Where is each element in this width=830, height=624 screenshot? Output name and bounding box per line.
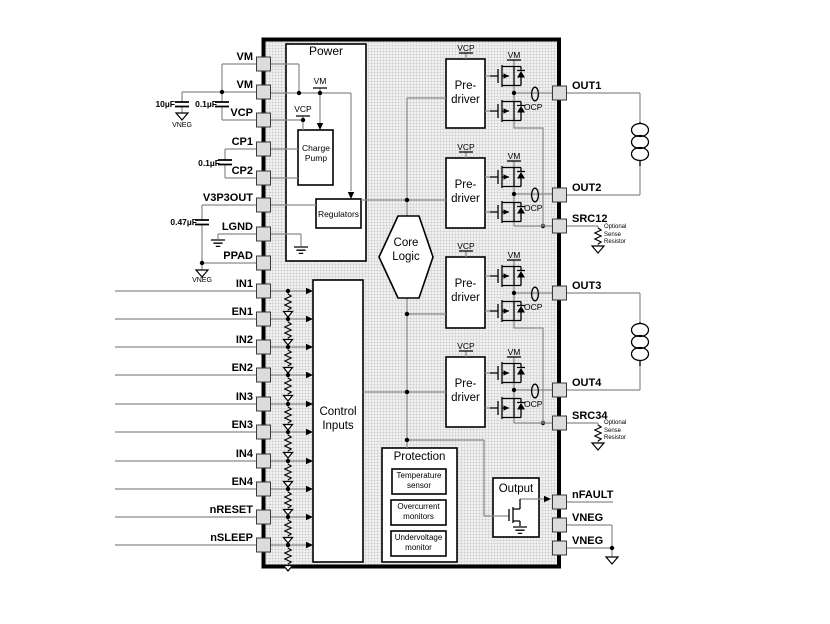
pin-nreset-left-16 bbox=[257, 510, 271, 524]
pin-vcp-left-2 bbox=[257, 113, 271, 127]
input-arrow bbox=[306, 429, 313, 435]
power-block-label: Power bbox=[286, 45, 366, 59]
cap-0p1uF-vm-label: 0.1µF bbox=[159, 99, 217, 109]
control-row-wires bbox=[115, 545, 306, 565]
junction-dot bbox=[286, 543, 290, 547]
low-side-mosfet bbox=[490, 300, 525, 322]
pin-label-en4: EN4 bbox=[133, 476, 253, 489]
cap-0p1uF-cp-label: 0.1µF bbox=[162, 158, 220, 168]
pulldown-resistor bbox=[285, 435, 291, 451]
pin-in4-left-14 bbox=[257, 454, 271, 468]
input-arrow bbox=[306, 372, 313, 378]
sense-resistor-34 bbox=[595, 425, 601, 441]
pin-label-vneg1: VNEG bbox=[572, 512, 652, 525]
output-block-label: Output bbox=[493, 483, 539, 497]
pin-label-nreset: nRESET bbox=[133, 504, 253, 517]
pin-in2-left-10 bbox=[257, 340, 271, 354]
overcurrent-monitors-label: Overcurrent monitors bbox=[391, 502, 446, 521]
junction-dot bbox=[286, 487, 290, 491]
high-side-mosfet bbox=[490, 65, 525, 87]
pin-nsleep-left-17 bbox=[257, 538, 271, 552]
capacitor-0p1uF-cp bbox=[218, 160, 232, 165]
pin-en2-left-11 bbox=[257, 368, 271, 382]
pin-out2-right-1 bbox=[553, 188, 567, 202]
pin-ppad-left-7 bbox=[257, 256, 271, 270]
junction-dot bbox=[286, 402, 290, 406]
vneg-ground-label-1: VNEG bbox=[160, 122, 204, 130]
pin-label-in3: IN3 bbox=[133, 391, 253, 404]
vm-rail-label-b4: VM bbox=[494, 347, 534, 357]
pin-label-out3: OUT3 bbox=[572, 280, 652, 293]
input-arrow bbox=[306, 288, 313, 294]
block-diagram: VM VM VCP CP1 CP2 V3P3OUT LGND PPAD IN1 … bbox=[0, 0, 830, 624]
junction-dot bbox=[286, 373, 290, 377]
protection-label: Protection bbox=[382, 451, 457, 465]
junction-dot bbox=[512, 192, 516, 196]
capacitor-0p1uF-vm bbox=[215, 102, 229, 107]
pin-label-vm2: VM bbox=[133, 79, 253, 92]
pin-en3-left-13 bbox=[257, 425, 271, 439]
predriver4-label: Pre-driver bbox=[446, 378, 485, 405]
junction-dot bbox=[286, 289, 290, 293]
ocp-sense-icon bbox=[532, 384, 539, 398]
pin-src12-right-2 bbox=[553, 219, 567, 233]
pin-cp1-left-3 bbox=[257, 142, 271, 156]
junction-dot bbox=[512, 291, 516, 295]
pin-label-nsleep: nSLEEP bbox=[133, 532, 253, 545]
ocp-label-1: OCP bbox=[524, 102, 554, 112]
input-arrow bbox=[306, 401, 313, 407]
vcp-rail-label-pd4: VCP bbox=[446, 341, 486, 351]
vm-rail-label-power: VM bbox=[300, 76, 340, 86]
input-arrow bbox=[306, 514, 313, 520]
pin-lgnd-left-6 bbox=[257, 227, 271, 241]
vcp-rail-label-pd1: VCP bbox=[446, 43, 486, 53]
ocp-sense-icon bbox=[532, 188, 539, 202]
ocp-label-3: OCP bbox=[524, 302, 554, 312]
pulldown-ground bbox=[284, 453, 293, 459]
input-arrow bbox=[306, 458, 313, 464]
pin-label-out1: OUT1 bbox=[572, 80, 652, 93]
junction-dot bbox=[512, 388, 516, 392]
pin-label-vneg2: VNEG bbox=[572, 535, 652, 548]
vcp-rail-label-pd3: VCP bbox=[446, 241, 486, 251]
pin-label-en2: EN2 bbox=[133, 362, 253, 375]
schematic-layer bbox=[0, 0, 830, 624]
undervoltage-monitor-label: Undervoltage monitor bbox=[391, 533, 446, 552]
junction-dot bbox=[286, 345, 290, 349]
input-arrow bbox=[306, 344, 313, 350]
pin-label-en1: EN1 bbox=[133, 306, 253, 319]
pulldown-resistor bbox=[285, 407, 291, 423]
input-arrow bbox=[306, 316, 313, 322]
low-side-mosfet bbox=[490, 100, 525, 122]
pulldown-resistor bbox=[285, 322, 291, 338]
predriver2-label: Pre-driver bbox=[446, 179, 485, 206]
charge-pump-label: Charge Pump bbox=[296, 143, 336, 163]
pin-out4-right-4 bbox=[553, 383, 567, 397]
pulldown-ground bbox=[284, 312, 293, 318]
pin-vm-left-0 bbox=[257, 57, 271, 71]
high-side-mosfet bbox=[490, 166, 525, 188]
predriver3-label: Pre-driver bbox=[446, 278, 485, 305]
pin-src34-right-5 bbox=[553, 416, 567, 430]
sense-resistor-12 bbox=[595, 228, 601, 244]
input-arrow bbox=[306, 486, 313, 492]
pulldown-ground bbox=[284, 482, 293, 488]
pulldown-resistor bbox=[285, 350, 291, 366]
pin-label-out2: OUT2 bbox=[572, 182, 652, 195]
motor-winding-2-icon bbox=[632, 322, 649, 366]
optional-sense-note-12: Optional Sense Resistor bbox=[604, 224, 644, 247]
pulldown-ground bbox=[284, 368, 293, 374]
pin-label-en3: EN3 bbox=[133, 419, 253, 432]
pulldown-resistor bbox=[285, 548, 291, 564]
input-arrow bbox=[306, 542, 313, 548]
pin-label-vm1: VM bbox=[133, 51, 253, 64]
vcp-rail-label-pd2: VCP bbox=[446, 142, 486, 152]
vm-rail-label-b3: VM bbox=[494, 250, 534, 260]
pin-label-in2: IN2 bbox=[133, 334, 253, 347]
pin-in3-left-12 bbox=[257, 397, 271, 411]
pulldown-ground bbox=[284, 510, 293, 516]
pin-label-nfault: nFAULT bbox=[572, 489, 652, 502]
vcp-rail-label-power: VCP bbox=[283, 104, 323, 114]
regulators-label: Regulators bbox=[316, 209, 361, 219]
pin-vneg-right-8 bbox=[553, 541, 567, 555]
junction-dot bbox=[286, 459, 290, 463]
pulldown-ground bbox=[284, 425, 293, 431]
junction-dot bbox=[286, 515, 290, 519]
pin-vm-left-1 bbox=[257, 85, 271, 99]
optional-sense-note-34: Optional Sense Resistor bbox=[604, 420, 644, 443]
temperature-sensor-label: Temperature sensor bbox=[392, 471, 446, 490]
junction-dot bbox=[286, 430, 290, 434]
low-side-mosfet bbox=[490, 397, 525, 419]
pin-nfault-right-6 bbox=[553, 495, 567, 509]
pin-label-in4: IN4 bbox=[133, 448, 253, 461]
ocp-sense-icon bbox=[532, 87, 539, 101]
pin-v3p3out-left-5 bbox=[257, 198, 271, 212]
pulldown-ground bbox=[284, 340, 293, 346]
vneg-ground-label-2: VNEG bbox=[180, 277, 224, 285]
pin-vneg-right-7 bbox=[553, 518, 567, 532]
pin-label-cp1: CP1 bbox=[133, 136, 253, 149]
ocp-sense-icon bbox=[532, 287, 539, 301]
pin-out3-right-3 bbox=[553, 286, 567, 300]
predriver1-label: Pre-driver bbox=[446, 80, 485, 107]
pin-en4-left-15 bbox=[257, 482, 271, 496]
pulldown-ground bbox=[284, 538, 293, 544]
pin-cp2-left-4 bbox=[257, 171, 271, 185]
pulldown-resistor bbox=[285, 294, 291, 310]
pin-label-out4: OUT4 bbox=[572, 377, 652, 390]
high-side-mosfet bbox=[490, 362, 525, 384]
pin-out1-right-0 bbox=[553, 86, 567, 100]
vm-rail-label-b2: VM bbox=[494, 151, 534, 161]
vm-rail-label-b1: VM bbox=[494, 50, 534, 60]
pin-label-ppad: PPAD bbox=[133, 250, 253, 263]
pin-label-v3p3out: V3P3OUT bbox=[133, 192, 253, 205]
pin-en1-left-9 bbox=[257, 312, 271, 326]
ocp-label-4: OCP bbox=[524, 399, 554, 409]
pulldown-resistor bbox=[285, 492, 291, 508]
low-side-mosfet bbox=[490, 201, 525, 223]
junction-dot bbox=[512, 91, 516, 95]
motor-winding-1-icon bbox=[632, 122, 649, 166]
ocp-label-2: OCP bbox=[524, 203, 554, 213]
pulldown-resistor bbox=[285, 520, 291, 536]
half-bridge-1 bbox=[485, 60, 553, 226]
pulldown-resistor bbox=[285, 378, 291, 394]
high-side-mosfet bbox=[490, 265, 525, 287]
control-inputs-label: Control Inputs bbox=[313, 406, 363, 433]
junction-dot bbox=[286, 317, 290, 321]
cap-0p47uF-label: 0.47µF bbox=[139, 217, 197, 227]
pin-in1-left-8 bbox=[257, 284, 271, 298]
pulldown-resistor bbox=[285, 464, 291, 480]
pulldown-ground bbox=[284, 396, 293, 402]
core-logic-label: Core Logic bbox=[379, 237, 433, 264]
